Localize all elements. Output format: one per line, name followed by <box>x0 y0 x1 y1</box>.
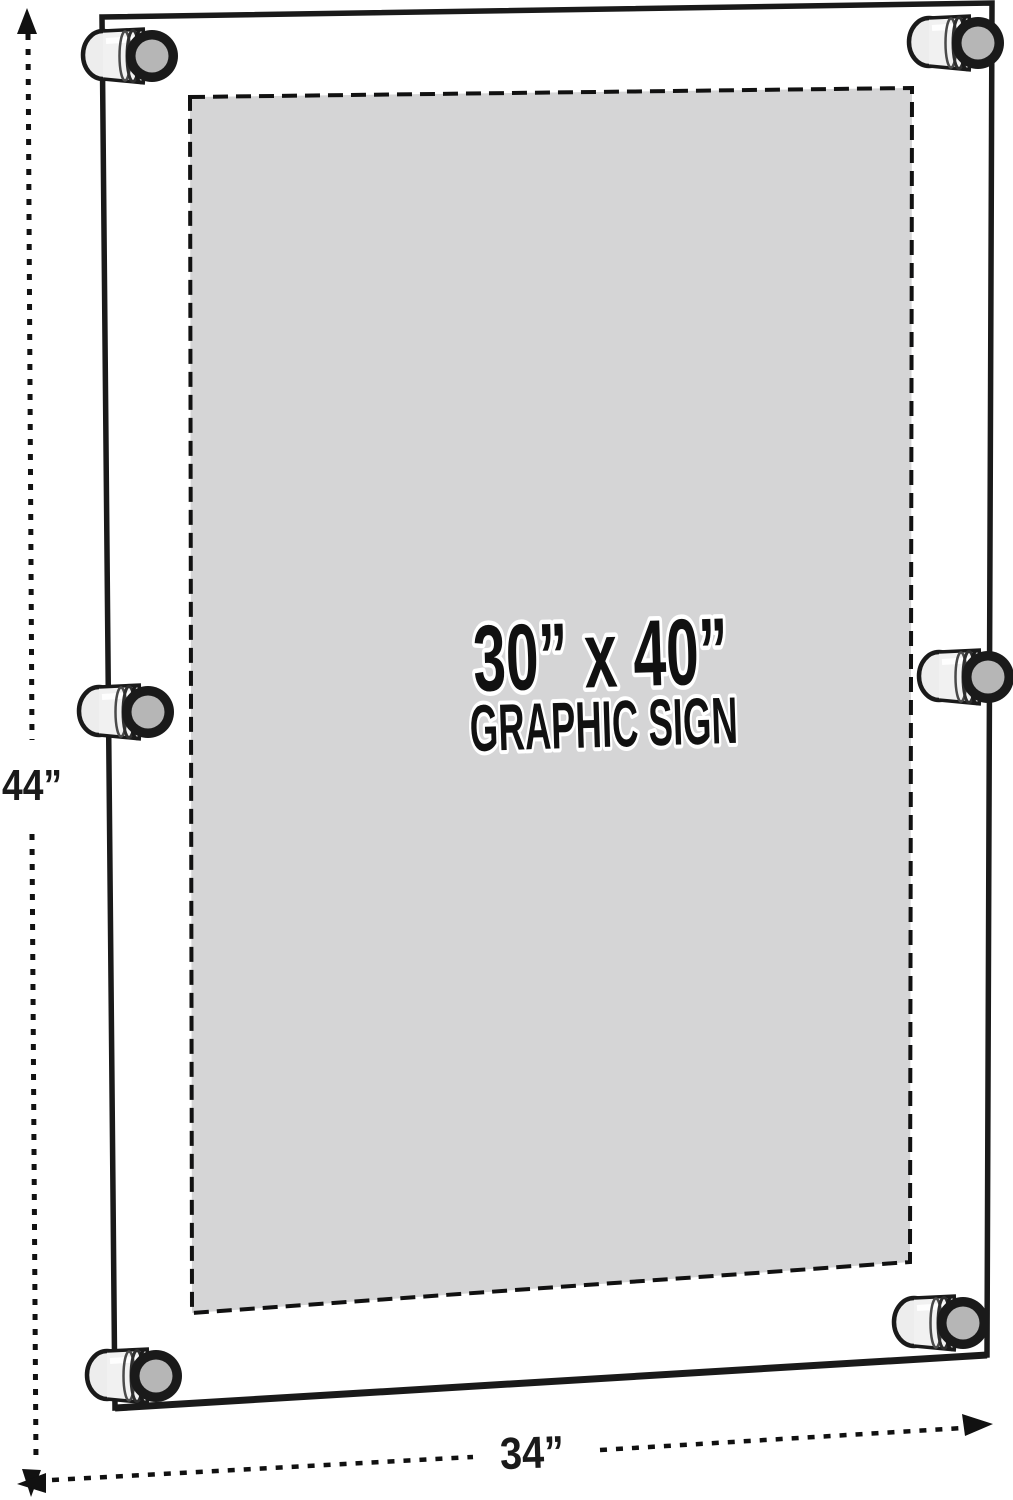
product-diagram: 30” x 40” GRAPHIC SIGN 44” 34” <box>0 0 1013 1500</box>
width-dimension-label: 34” <box>499 1426 565 1479</box>
standoff-middle-right <box>919 650 1013 704</box>
standoff-top-left <box>83 29 178 83</box>
height-dimension-label: 44” <box>2 761 62 810</box>
sign-caption-label: GRAPHIC SIGN <box>469 683 739 765</box>
standoff-top-right <box>909 16 1004 70</box>
standoff-middle-left <box>79 685 174 739</box>
sign-text-group: 30” x 40” GRAPHIC SIGN <box>466 598 739 765</box>
sign-frame-diagram-canvas: 30” x 40” GRAPHIC SIGN 44” 34” <box>0 0 1013 1500</box>
standoff-bottom-left <box>87 1349 182 1403</box>
standoff-bottom-right <box>894 1296 989 1350</box>
